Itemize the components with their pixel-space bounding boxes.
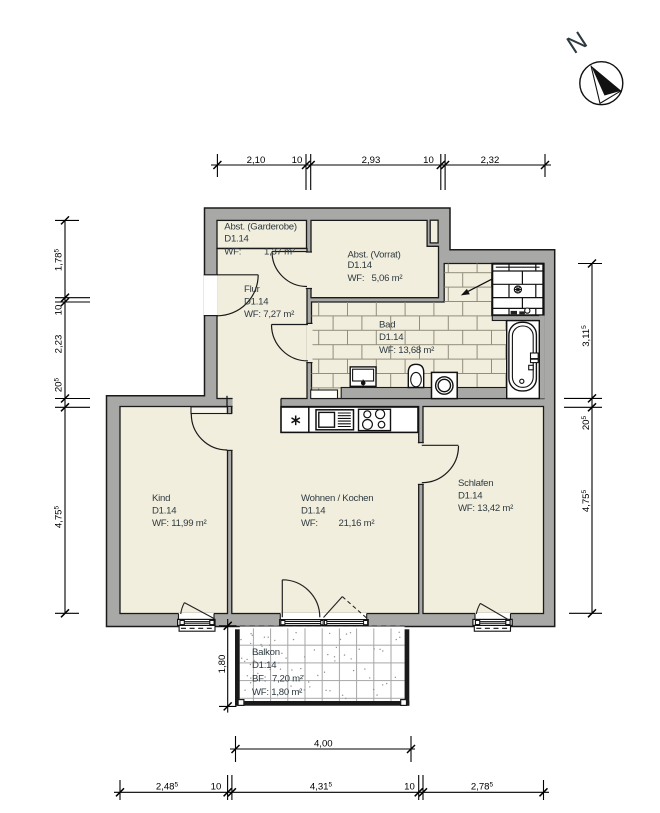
- svg-text:Abst. (Vorrat): Abst. (Vorrat): [348, 250, 401, 261]
- svg-text:D1.14: D1.14: [379, 332, 404, 343]
- svg-text:Kind: Kind: [152, 493, 170, 504]
- svg-text:Flur: Flur: [244, 284, 261, 295]
- svg-text:BF:: BF:: [252, 674, 266, 685]
- svg-text:WF: 7,27 m²: WF: 7,27 m²: [244, 309, 295, 320]
- svg-text:WF:: WF:: [348, 273, 365, 284]
- svg-text:10: 10: [292, 155, 303, 166]
- svg-text:10: 10: [54, 305, 65, 316]
- svg-text:10: 10: [423, 155, 434, 166]
- svg-text:2,23: 2,23: [54, 335, 65, 354]
- svg-text:1,37 m²: 1,37 m²: [264, 247, 296, 258]
- svg-text:Balkon: Balkon: [252, 647, 280, 658]
- svg-text:2,32: 2,32: [481, 155, 500, 166]
- svg-text:1,80: 1,80: [217, 655, 228, 674]
- svg-text:WF:: WF:: [301, 518, 318, 529]
- svg-text:Wohnen / Kochen: Wohnen / Kochen: [301, 493, 373, 504]
- svg-text:D1.14: D1.14: [348, 260, 373, 271]
- svg-text:WF: 13,42 m²: WF: 13,42 m²: [458, 503, 514, 514]
- svg-text:WF:: WF:: [224, 247, 241, 258]
- svg-text:4,00: 4,00: [314, 738, 333, 749]
- svg-text:Bad: Bad: [379, 320, 395, 331]
- svg-text:7,20 m²: 7,20 m²: [272, 674, 304, 685]
- svg-text:D1.14: D1.14: [224, 234, 249, 245]
- svg-text:21,16 m²: 21,16 m²: [339, 518, 376, 529]
- svg-text:D1.14: D1.14: [458, 491, 483, 502]
- svg-text:2,10: 2,10: [247, 155, 266, 166]
- svg-text:WF: 11,99 m²: WF: 11,99 m²: [152, 518, 207, 529]
- svg-text:2,93: 2,93: [362, 155, 381, 166]
- svg-text:10: 10: [404, 781, 415, 792]
- svg-text:D1.14: D1.14: [301, 506, 326, 517]
- svg-text:WF: 1,80 m²: WF: 1,80 m²: [252, 687, 303, 698]
- svg-text:Schlafen: Schlafen: [458, 478, 493, 489]
- svg-text:D1.14: D1.14: [244, 297, 269, 308]
- svg-text:10: 10: [211, 781, 222, 792]
- svg-text:WF: 13,68 m²: WF: 13,68 m²: [379, 345, 435, 356]
- svg-text:Abst. (Garderobe): Abst. (Garderobe): [224, 222, 297, 233]
- svg-text:D1.14: D1.14: [252, 660, 277, 671]
- svg-text:5,06 m²: 5,06 m²: [372, 273, 404, 284]
- svg-text:D1.14: D1.14: [152, 506, 177, 517]
